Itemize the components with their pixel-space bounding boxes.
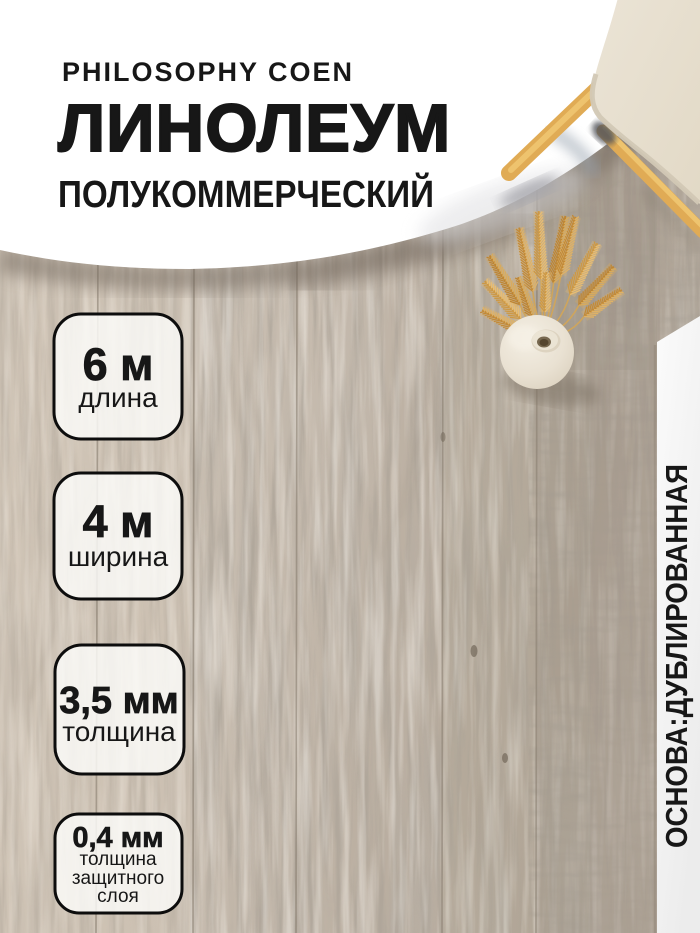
svg-text:ПОЛУКОММЕРЧЕСКИЙ: ПОЛУКОММЕРЧЕСКИЙ [58, 171, 434, 216]
svg-text:ЛИНОЛЕУМ: ЛИНОЛЕУМ [58, 91, 450, 166]
svg-text:толщина: толщина [62, 716, 176, 747]
svg-text:PHILOSOPHY COEN: PHILOSOPHY COEN [62, 57, 352, 87]
svg-text:длина: длина [78, 382, 158, 413]
svg-text:ОСНОВА:ДУБЛИРОВАННАЯ: ОСНОВА:ДУБЛИРОВАННАЯ [659, 464, 694, 848]
svg-text:толщина: толщина [79, 849, 156, 870]
svg-text:4 м: 4 м [83, 496, 154, 547]
svg-text:слоя: слоя [97, 886, 139, 907]
svg-text:ширина: ширина [68, 541, 169, 572]
